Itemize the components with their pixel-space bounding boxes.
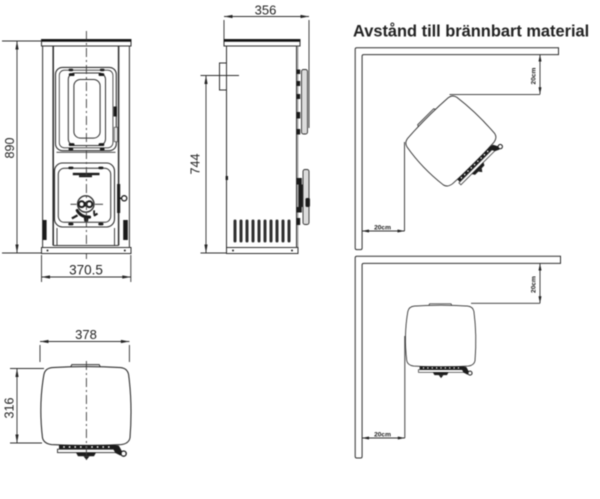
svg-text:744: 744: [189, 154, 203, 175]
svg-text:20cm: 20cm: [530, 67, 537, 84]
svg-text:20cm: 20cm: [374, 224, 391, 231]
svg-text:Avstånd till brännbart materia: Avstånd till brännbart material: [353, 23, 589, 41]
svg-text:20cm: 20cm: [530, 276, 537, 293]
svg-text:378: 378: [75, 327, 97, 342]
svg-text:356: 356: [255, 3, 277, 18]
svg-text:316: 316: [3, 398, 17, 419]
svg-text:20cm: 20cm: [374, 431, 391, 438]
svg-text:890: 890: [3, 138, 17, 159]
svg-text:370.5: 370.5: [69, 263, 103, 278]
